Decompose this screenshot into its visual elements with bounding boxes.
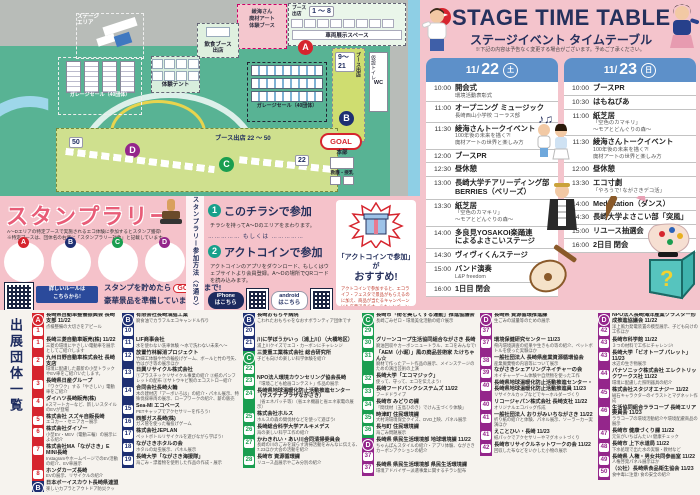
event-title: リユース抽選会 (593, 227, 644, 236)
event-subtitle: 環境活動表彰式 (455, 93, 492, 100)
exhibitor-desc: 磁石キャラクターのイラストとマグネット作成 (612, 394, 698, 404)
booth-number: 26 (244, 426, 254, 435)
exhibitor-desc: 回収した布などをいかした小物の展示 (494, 449, 596, 454)
event-title: はもねびあ (593, 98, 629, 107)
or-label: …………… もしくは …………… (208, 232, 332, 240)
exhibitor-list-panel: 出展団体一覧 A1 長崎県自動車整備振興会 長崎支部 11/22点検整備の大切さ… (0, 310, 700, 495)
method-2-number: 2 (208, 245, 221, 258)
booth-number: 40 (481, 401, 491, 410)
exhibitor-desc: 浦上川クイズでエコ・カーボンにチャレンジ (257, 344, 360, 349)
booth-22-chip: 22 (295, 155, 309, 166)
event-time: 12:00 (428, 152, 455, 161)
booth-number: 42 (481, 444, 491, 453)
toilet-zone: 仮設トイレ WC (369, 52, 388, 112)
booth-number: 1 (33, 339, 43, 348)
exhibitor-desc: 洋上風力発電装置の模型展示、子ども向けの工作ほか (612, 325, 698, 335)
event-time: 13:00 (428, 179, 455, 197)
exhibitor-entry: 46 生活協同組合ララコープ 長崎エリア委員会 11/23ララコープの環境活動紹… (598, 406, 698, 430)
booth-number: 6 (33, 428, 43, 437)
goal-pre-text: スタンプを貯めたら (104, 283, 171, 292)
day1-day: 22 (481, 61, 499, 79)
garage-sale-zone-2: ガレージセール（40団体） (247, 62, 327, 122)
booth-9-21-caption: ブース出店 (355, 52, 362, 136)
method-2: 2アクトコインで参加 (208, 243, 332, 261)
exhibitor-desc: InstagramやホームページでのEV活動の紹介、EV車展示 (46, 457, 119, 467)
exhibitor-entry: 44 パナソニック株式会社 エレクトリックワークス社 11/22環境に配慮した照… (598, 369, 698, 388)
booth-number: 41 (481, 431, 491, 440)
exhibitor-desc: 三菱の環境にやさしい電動車を展示としてご紹介します (46, 344, 119, 354)
booth-squares (291, 19, 403, 28)
aid-building (343, 176, 354, 185)
exhibitor-entry: 6 株式会社ダイゾー小型EV・MEV（電動三輪）の展示による紹介 (32, 427, 119, 445)
stamp-note-2: ※特定ブースは、団体名の右側に「スタンプラリー対象」と記載しています。 (7, 235, 183, 241)
booth-number: 18 (123, 443, 133, 452)
timetable-row: 10:00 開会式 環境活動表彰式 (426, 82, 558, 102)
event-subtitle: 「空色のカマキリ」 ～モアとどんぐりの森～ (455, 210, 513, 223)
event-title: ブースPR (593, 84, 625, 93)
stamp-chip-d: D (159, 237, 170, 248)
exhibitor-entry: 31 「AEM（小堀）」風の廃品芸術家 たけちゃん☆廃材で作ったアート作品の展示… (362, 351, 478, 375)
event-title: バンド演奏 (455, 265, 492, 274)
booth-row (239, 156, 331, 173)
section-badge: A (32, 314, 44, 326)
exhibitor-column-1: A1 長崎県自動車整備振興会 長崎支部 11/22点検整備の大切さをアピール 1… (32, 313, 119, 492)
event-subtitle: L&P freedom (455, 274, 492, 281)
android-qr-code (311, 289, 332, 311)
vehicle-space-label: 車両展示スペース (292, 30, 402, 40)
exhibitor-entry: 24 長崎県地球温暖化防止活動推進センター（サステナプラザながさき）（省エネパッ… (243, 389, 360, 413)
booth-number: 50 (599, 468, 609, 477)
exhibitor-entry: 23 NPO法人環境カウンセリング協会長崎「環境こども絵画コンテスト」作品の展示 (243, 376, 360, 389)
exhibitor-desc: リサイクルカップなどでキーホルダーづくり (494, 393, 596, 398)
exhibitor-entry: B10 有限会社長崎油脂工業廃食油でカラフルエコキャンドル作り (122, 313, 240, 338)
event-subtitle: 100年後の未来を描く?! 廃材アートの世界と楽しみ方 (455, 133, 535, 146)
stamp-chip-a: A (18, 237, 29, 248)
wc-label: WC (370, 80, 387, 86)
timetable-row: 14:00 Medistation（ダンス） (564, 198, 696, 212)
timetable-row: 11:00 オープニング ミュージック 長崎西山小学校 コーラス部 (426, 102, 558, 122)
app-links: iPhone はこちら android はこちら (208, 289, 332, 311)
timetable-row: 14:30 ヴィヴィくんステージ (426, 249, 558, 263)
booth-number: 41 (481, 414, 491, 423)
exhibitor-desc: ホルスの森の間伐材などを使って遊ぼう! (257, 418, 360, 423)
event-time: 14:30 (566, 213, 593, 222)
exhibitor-desc: 廃材で作ったアート作品の展示、メインステージのための演出芸術の上演 (376, 362, 478, 372)
goal-marker: GOAL (320, 133, 362, 150)
booth-number: 25 (244, 413, 254, 422)
day1-month: 11/ (466, 65, 479, 76)
reco-title: 「アクトコインで参加」が (336, 253, 416, 271)
garage-grids (59, 61, 141, 93)
stamp-circle-d: D (145, 242, 185, 282)
method-vertical-strip: スタンプラリー参加方法〈2通り〉 (186, 196, 204, 310)
booth-number: 13 (123, 369, 133, 378)
tent-grid (152, 71, 199, 81)
booth-number: 48 (599, 443, 609, 452)
area-a-marker: A (298, 40, 313, 55)
exhibitor-entry: D42 NPO法人長崎海洋産業クラスター形成推進協議会 11/22洋上風力発電装… (598, 313, 698, 338)
exhibitor-column-4: C29 長崎市「街を美しくする運動」推進協議会長崎ごみゼロ・環境美化活動の紹介展… (362, 313, 478, 492)
exhibitor-entry: 50 （公社）長崎県食品衛生協会 11/23食中毒に注意! 食の安全の紹介 (598, 467, 698, 480)
exhibitor-entry: 14 合同会社長崎火輪木の建材店「アーボいろは」の紹介・パネル展示、特殊伐採車両… (122, 386, 240, 404)
stamp-circle-b: B (51, 242, 91, 282)
section-badge: D (362, 439, 374, 451)
stamp-rally-note: A～Dエリアの特定ブースで実施されるエコ体験に参加するとスタンプ獲得! ※特定ブ… (7, 229, 183, 241)
event-time: 15:00 (566, 227, 593, 236)
event-time: 10:00 (428, 84, 455, 99)
booth-number: 21 (244, 339, 254, 348)
exhibitor-desc: ネイチャーゲーム体験や自然物を使った工作 (494, 374, 596, 379)
food-booth-zone: 飲食ブース 出店 (197, 23, 239, 58)
stage-shape-blue (114, 32, 133, 47)
booth-row (65, 148, 215, 173)
day1-header: 11/22土 (426, 58, 558, 82)
stage-shape (96, 33, 116, 46)
exhibitor-desc: オリジナルエコバッグ作成 (494, 406, 596, 411)
booth-number: 44 (599, 370, 609, 379)
event-title: 昼休憩 (455, 165, 477, 174)
exhibitor-entry: 19 長崎大学「ながさき海援隊」海ごみ・漂着物を使用した作品の作成・展示 (122, 455, 240, 468)
food-tent-shape (206, 27, 230, 37)
tent-grid (152, 59, 199, 69)
exhibitor-desc: 竹細工体験や竹の輪投げゲーム、ボールと竹の弓矢、竹はがき等の展示ほか (136, 357, 240, 367)
booth-22-50-zone: 50 D ブース出店 22 ～ 50 C 22 (56, 128, 338, 192)
iphone-qr-code (247, 289, 268, 311)
booth-range-9-21: 9～21 (335, 52, 355, 72)
exhibitor-entry: 37 環境保健研究センター 11/23県内環境調査の結果や生きもの等の紹介、ペッ… (480, 338, 596, 356)
exhibitor-desc: PETキャップでアクセサリーを作ろう! (136, 410, 240, 415)
event-time: 14:30 (428, 251, 455, 260)
booth-number: 28 (244, 456, 254, 465)
stage-title: STAGE TIME TABLE (452, 5, 671, 31)
event-time: 16:00 (428, 285, 455, 294)
exhibitor-entry: B9 日本ボーイスカウト長崎県連盟楽しいカプラとアウトドア防災クッキング (32, 481, 119, 492)
booth-number: 31 (363, 352, 373, 361)
event-time: 12:00 (566, 165, 593, 174)
method-vertical-label: スタンプラリー参加方法〈2通り〉 (191, 196, 200, 310)
exhibitor-entry: 41 一般社団法人 おりがみいちながさき 11/22折り紙の紹介と体験、パネル展… (480, 413, 596, 431)
exhibitor-entry: C29 長崎市「街を美しくする運動」推進協議会長崎ごみゼロ・環境美化活動の紹介展… (362, 313, 478, 338)
hq-label: 本部 (330, 150, 354, 156)
exhibitor-entry: 40 長崎県地球温暖化防止活動推進センター・長崎県地球温暖化防止活動推進員 11… (480, 381, 596, 400)
exhibitor-desc: 使って、守って、エコを伝えよう! (376, 380, 478, 385)
event-time: 16:00 (566, 241, 593, 250)
exhibitor-desc: 子ども向けの楽しい科学体験を紹介 (257, 357, 360, 362)
method-1-number: 1 (208, 204, 221, 217)
event-time: 11:30 (566, 138, 593, 160)
booth-number: 37 (363, 452, 373, 461)
exhibitor-desc: 環境に配慮した照明器具の紹介 (612, 381, 698, 386)
booth-number: 22 (244, 365, 254, 374)
event-time: 14:00 (566, 200, 593, 209)
area-b-marker: B (339, 111, 354, 126)
exhibitor-desc: 海ごみ・漂着物を使用した作品の作成・展示 (136, 461, 240, 466)
section-badge: C (243, 352, 255, 364)
day2-dow-badge: 日 (641, 63, 656, 78)
exhibitor-desc: 紙パックでアクセサリーやマグネットづくり (494, 436, 596, 441)
garage-sale-zone-1: ガレージセール（40団体） (58, 57, 142, 115)
booth-number: 33 (363, 388, 373, 397)
exhibitor-desc: 人権啓発パネル展示ほか (612, 460, 698, 465)
exhibitor-desc: フードドライブ (376, 393, 478, 398)
exhibitor-desc: ララコープの環境活動紹介や環境配慮商品の展示 (612, 417, 698, 427)
exhibitor-desc: 廃食油でカラフルエコキャンドル作り (136, 319, 240, 324)
method-2-desc: アクトコインのアプリをダウンロード、もしくはウェブサイトより会員登録。A～Dの場… (210, 263, 332, 284)
timetable-row: 12:00 昼休憩 (564, 163, 696, 177)
exhibitor-desc: エコカー・セニアカー展示 (46, 420, 119, 425)
exhibitor-entry: 3 長崎県日産グループ「ワクワク」する「やさしい」電動車をご紹介 (32, 379, 119, 397)
day1-rows: 10:00 開会式 環境活動表彰式 11:00 オープニング ミュージック 長崎… (426, 82, 558, 297)
booth-number: 32 (363, 375, 373, 384)
exhibitor-entry: 25 株式会社ホルスホルスの森の間伐材などを使って遊ぼう! (243, 412, 360, 425)
hq-building (330, 157, 354, 169)
timetable-row: 16:00 2日目 閉会 (564, 239, 696, 253)
exhibitor-column-6: D42 NPO法人長崎海洋産業クラスター形成推進協議会 11/22洋上風力発電装… (598, 313, 698, 492)
timetable-row: 10:30 はもねびあ (564, 96, 696, 110)
garage-strip (251, 91, 323, 102)
timetable-row: 13:30 エコ寸劇 「やろうで! ながさきデコ活」 (564, 177, 696, 197)
exhibitor-desc: 産業廃棄物の内容等について展示 (494, 362, 596, 367)
section-badge: B (122, 314, 134, 326)
event-subtitle: 100年後の未来を描く?! 廃材アートの世界と楽しみ方 (593, 147, 673, 160)
exhibitor-desc: 水を使わない洗車体験 ～水で洗わない未来へ～ (136, 344, 240, 349)
exhibitor-column-5: D37 長崎県 資源循環推進課生ごみの減量等のための展示 37 環境保健研究セン… (480, 313, 596, 492)
timetable-row: 14:00 多良見YOSAKOI楽踊連 によるよさこいステージ (426, 227, 558, 250)
exhibitor-column-3: B20 長崎おもちゃ病院こわれたおもちゃをなおすボランティア団体です 21 川に… (243, 313, 360, 492)
method-1: 1このチラシで参加 (208, 202, 332, 220)
day2-header: 11/23日 (564, 58, 696, 82)
booth-number: 10 (123, 327, 133, 336)
exhibitor-desc: 水辺の生き物展示 (612, 362, 698, 367)
method-2-title: アクトコインで参加 (224, 247, 322, 259)
booth-range-1-8: 1 ～ 8 (309, 6, 334, 17)
event-title: 2日目 閉会 (593, 241, 628, 250)
stamp-chip-c: C (112, 237, 123, 248)
booth-number: 12 (123, 352, 133, 361)
exhibitor-desc: 楽しいカプラとアウトドア防災クッキング (46, 487, 119, 492)
aid-building (330, 176, 341, 185)
event-title: 紙芝居 (593, 112, 651, 121)
stamp-rally-panel: スタンプラリー A～Dエリアの特定ブースで実施されるエコ体験に参加するとスタンプ… (0, 196, 420, 310)
exhibitor-entry: B20 長崎おもちゃ病院こわれたおもちゃをなおすボランティア団体です (243, 313, 360, 338)
booth-number: 36 (363, 426, 373, 435)
event-time: 12:30 (428, 165, 455, 174)
day2-month: 11/ (604, 65, 617, 76)
exhibitor-entry: 43 長崎大学「ビオトープ パレット」11/23水辺の生き物展示 (598, 351, 698, 370)
booth-number: 19 (123, 456, 133, 465)
exhibitor-entry: C22 三菱重工業株式会社 総合研究所子ども向けの楽しい科学体験を紹介 (243, 351, 360, 376)
timetable-row: 16:00 1日目 閉会 (426, 283, 558, 297)
exhibitor-entry: 28 長崎市 資源循環課リユース品展示やごみ分別の紹介 (243, 455, 360, 468)
section-badge: C (362, 314, 374, 326)
exhibitor-entry: 21 川に学ぼうかいっ（浦上川）（大橋地区）浦上川クイズでエコ・カーボンにチャレ… (243, 338, 360, 351)
timetable-row: 15:00 バンド演奏 L&P freedom (426, 263, 558, 283)
event-title: 長崎大学チアリーディング部 BERRIES（ベリーズ） (455, 179, 549, 197)
booth-number: 29 (363, 327, 373, 336)
event-subtitle: 「やろうで! ながさきデコ活」 (593, 188, 665, 195)
stage-note: ※下記の内容は予告なく変更する場合がございます。予めご了承ください。 (452, 46, 668, 53)
garage-strip (251, 65, 323, 76)
event-time: 10:30 (566, 98, 593, 107)
headquarters: 本部 救護・授乳 (330, 150, 354, 185)
stamp-rally-title: スタンプラリー (6, 199, 173, 231)
exhibitor-desc: 「間伐材（五島ひのき）でけん玉づくり体験」 (376, 406, 478, 411)
exhibitor-desc: 点検整備の大切さをアピール (46, 325, 119, 330)
exhibitor-desc: 「ワクワク」する「やさしい」電動車をご紹介 (46, 385, 119, 395)
booth-number: 17 (123, 430, 133, 439)
food-booth-label: 飲食ブース 出店 (198, 42, 238, 55)
stamp-circle-c: C (98, 242, 138, 282)
exhibitor-desc: ちゃんぽんスタイルの紹介・アプリ体験、ながさきカーボンアクションの紹介 (376, 444, 478, 454)
section-badge: D (598, 314, 610, 326)
exhibitor-desc: 木の建材店「アーボいろは」の紹介・パネル展示、特殊伐採車両の展示、ロープワークの… (136, 392, 240, 402)
exhibitor-entry: 18 ながさきホタルの会ホタルの幼虫展示、パネル展示 (122, 442, 240, 455)
area-c-marker: C (219, 157, 234, 172)
exhibitor-entry: D37 長崎県 県民生活環境部 地球環境課 11/22ちゃんぽんスタイルの紹介・… (362, 438, 478, 463)
booth-number: 2 (33, 357, 43, 366)
exhibitor-entry: 26 長崎総合科学大学アルキメデス海の楽しい科学工作の紹介 (243, 425, 360, 438)
exhibitor-desc: eスマートカーなど、新しいスタイルのEVが登場 (46, 403, 119, 413)
exhibitor-desc: ガス管を使った輪投げゲーム (136, 422, 240, 427)
exhibitor-desc: ホタルの幼虫展示、パネル展示 (136, 448, 240, 453)
toilet-label: 仮設トイレ (370, 55, 377, 80)
event-title: 昼休憩 (593, 165, 615, 174)
section-badge: B (243, 314, 255, 326)
exhibitor-desc: 海ごみ問題展示 (376, 431, 478, 436)
timetable-row: 14:30 長崎大学よさこい部「突風」 (564, 211, 696, 225)
venue-map: ステージ エリア 綾海さん 廃材アート 体験ブース ブース 出店 1 ～ 8 車… (0, 0, 420, 196)
flyer-page: ステージ エリア 綾海さん 廃材アート 体験ブース ブース 出店 1 ～ 8 車… (0, 0, 700, 495)
timetable-row: 12:30 昼休憩 (426, 163, 558, 177)
booth-number: 7 (33, 446, 43, 455)
exhibitor-entry: 37 長崎県 県民生活環境部 県民生活環境課環境アドバイザー派遣事業に関するチラ… (362, 463, 478, 476)
booth-number: 39 (481, 369, 491, 378)
exhibitor-entry: 43 長崎市科学館 11/22３つの材料で工作にチャレンジ! (598, 338, 698, 351)
booth-number: 3 (33, 380, 43, 389)
exhibitor-desc: 折り紙の紹介と体験、パネル展示、ソーラーカー実演ほか (494, 418, 596, 428)
exhibitor-desc: 県内環境調査の結果や生きもの等の紹介、ペットボトルを使った実験ほか (494, 344, 596, 354)
booth-number: 42 (599, 327, 609, 336)
event-title: 長崎大学よさこい部「突風」 (593, 213, 688, 222)
event-time: 15:00 (428, 265, 455, 280)
timetable-row: 11:00 紙芝居 「空色のカマキリ」 ～モアとどんぐりの森～ (564, 110, 696, 137)
exhibitor-desc: 長崎の川のごみを減らす清掃活動をみんなに伝える、7.23ほか大会の活動を紹介 (257, 443, 360, 453)
timetable-row: 13:30 紙芝居 「空色のカマキリ」 ～モアとどんぐりの森～ (426, 200, 558, 227)
exhibitor-entry: 45 株式会社スタジオエナジー 11/22磁石キャラクターのイラストとマグネット… (598, 388, 698, 406)
reco-emphasis: おすすめ! (336, 271, 416, 284)
event-time: 11:00 (566, 112, 593, 134)
exhibitor-desc: 小型EV・MEV（電動三輪）の展示による紹介 (46, 433, 119, 443)
garage-sale-2-label: ガレージセール（40団体） (248, 104, 326, 110)
participation-methods: 1このチラシで参加 チラシを持ってA～Dのエリアをまわります。 …………… もし… (208, 202, 332, 311)
stage-shape (102, 17, 137, 36)
garage-strip (251, 78, 323, 89)
booth-number: 46 (599, 407, 609, 416)
garage-sale-1-label: ガレージセール（40団体） (59, 93, 141, 99)
stage-timetable-panel: STAGE TIME TABLE ステージイベント タイムテーブル ※下記の内容… (420, 0, 700, 310)
android-link: android はこちら (271, 291, 309, 310)
exhibitor-desc: 環境に配慮した最新の小型トラックやEV車をご紹介いたします。 (46, 367, 119, 377)
event-title: ブースPR (455, 152, 487, 161)
day2-day: 23 (619, 61, 637, 79)
exhibitor-entry: 13 日興リサイクル株式会社①プラスチックリサイクル事業の紹介 ②紙のパンフレッ… (122, 368, 240, 386)
stamp-circle-a: A (4, 242, 44, 282)
exhibitor-entry: 40 リコージャパン株式会社 長崎支社 11/22オリジナルエコバッグ作成 (480, 400, 596, 413)
timetable-row: 10:00 ブースPR (564, 82, 696, 96)
booth-number: 43 (599, 352, 609, 361)
event-time: 10:00 (566, 84, 593, 93)
timetable-row: 12:00 ブースPR (426, 150, 558, 164)
exhibitor-entry: 12 放置竹林解消プロジェクト竹細工体験や竹の輪投げゲーム、ボールと竹の弓矢、竹… (122, 351, 240, 369)
booth-number: 5 (33, 416, 43, 425)
exhibitor-entry: 11 LIF商事会社水を使わない洗車体験 ～水で洗わない未来へ～ (122, 338, 240, 351)
exhibitor-desc: ３つの材料で工作にチャレンジ! (612, 344, 698, 349)
event-time: 13:30 (428, 202, 455, 224)
timetable-row: 15:00 リユース抽選会 (564, 225, 696, 239)
exhibitor-desc: 海の楽しい科学工作の紹介 (257, 431, 360, 436)
event-title: 開会式 (455, 84, 492, 93)
booth-number: 4 (33, 398, 43, 407)
booth-number: 8 (33, 470, 43, 479)
water-strip (408, 0, 420, 196)
exhibitor-column-2: B10 有限会社長崎油脂工業廃食油でカラフルエコキャンドル作り 11 LIF商事… (122, 313, 240, 492)
stamp-circles: A B C D (4, 242, 185, 282)
exhibitor-name: 株式会社MA「ながさき」E MINI長崎 (46, 445, 119, 457)
exhibitor-entry: 34 長崎市 みどりの課「間伐材（五島ひのき）でけん玉づくり体験」 (362, 400, 478, 413)
exhibitor-entry: 4 ダイハツ長崎販売(株)eスマートカーなど、新しいスタイルのEVが登場 (32, 397, 119, 415)
booth-number: 20 (244, 327, 254, 336)
timetable-row: 11:30 綾海さんトークイベント 100年後の未来を描く?! 廃材アートの世界… (564, 136, 696, 163)
reco-desc: アクトコインで参加すると、エコライフ・フェスタで景品がもらえるのに加え、商品が当… (336, 284, 416, 306)
exhibitor-entry: 42 長崎市リサイクルネットワークの会 11/22回収した布などをいかした小物の… (480, 443, 596, 456)
booth-number: 38 (481, 357, 491, 366)
eco-logo-icon (432, 7, 452, 27)
timetable-row: 13:00 長崎大学チアリーディング部 BERRIES（ベリーズ） (426, 177, 558, 200)
goal-line-2: 豪華景品を準備しています! (104, 295, 196, 306)
section-badge: D (480, 314, 492, 326)
exhibitor-entry: 30 グリーンコープ生活協同組合ながさき 長崎廃油回収やカーボンニュートラル、エ… (362, 338, 478, 351)
exhibitor-entry: 2 九州日野自動車株式会社 長崎支店環境に配慮した最新の小型トラックやEV車をご… (32, 356, 119, 380)
exhibitor-name: 長崎県自動車整備振興会 長崎支部 11/22 (46, 313, 119, 325)
booth-number: 47 (599, 430, 609, 439)
iphone-link: iPhone はこちら (208, 292, 244, 309)
booth-number: 16 (123, 418, 133, 427)
booth-number: 15 (123, 405, 133, 414)
booth-number: 30 (363, 339, 373, 348)
event-time: 11:30 (428, 125, 455, 147)
booth-number: 23 (244, 377, 254, 386)
section-badge: B (32, 482, 44, 492)
experience-tent-zone: 体験テント (151, 56, 200, 93)
booth-number: 24 (244, 390, 254, 399)
exhibitor-desc: 環境アドバイザー派遣事業に関するチラシ配布 (376, 469, 478, 474)
exhibitor-desc: 生ごみの減量等のための展示 (494, 319, 596, 324)
exhibitor-entry: A1 長崎県自動車整備振興会 長崎支部 11/22点検整備の大切さをアピール (32, 313, 119, 338)
exhibitor-desc: ペットボトルリサイクルを遊びながら学ぼう! (136, 435, 240, 440)
exhibitor-entry: 15 Sea-MI エコベースPETキャップでアクセサリーを作ろう! (122, 404, 240, 417)
day2-rows: 10:00 ブースPR 10:30 はもねびあ (564, 82, 696, 253)
event-time: 14:00 (428, 229, 455, 247)
stamp-chip-b: B (65, 237, 76, 248)
exhibitor-desc: こわれたおもちゃをなおすボランティア団体です (257, 319, 360, 324)
event-title: ヴィヴィくんステージ (455, 251, 528, 260)
event-title: 多良見YOSAKOI楽踊連 によるよさこいステージ (455, 229, 535, 247)
event-subtitle: 「空色のカマキリ」 ～モアとどんぐりの森～ (593, 120, 651, 133)
exhibitor-entry: D37 長崎県 資源循環推進課生ごみの減量等のための展示 (480, 313, 596, 338)
booth-1-8-caption: ブース 出店 (292, 6, 306, 17)
experience-tent-label: 体験テント (152, 82, 199, 88)
booth-number: 49 (599, 456, 609, 465)
